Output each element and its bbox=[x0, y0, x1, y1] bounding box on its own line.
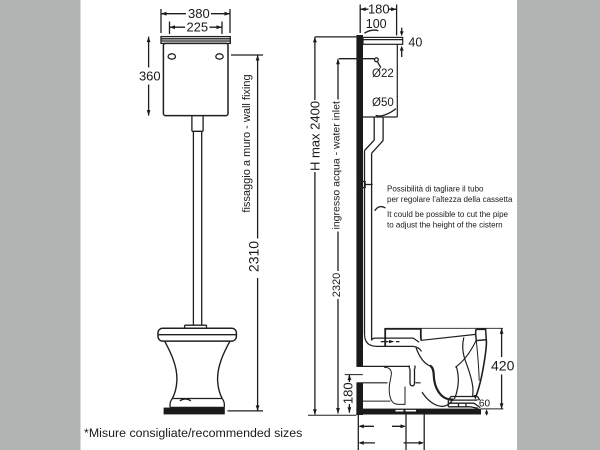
svg-text:180: 180 bbox=[340, 382, 355, 404]
svg-text:It could be possible to cut th: It could be possible to cut the pipe bbox=[387, 210, 509, 219]
svg-text:225: 225 bbox=[186, 20, 208, 35]
svg-text:180: 180 bbox=[368, 1, 390, 16]
svg-text:420: 420 bbox=[491, 358, 515, 374]
svg-text:per regolare l’altezza della c: per regolare l’altezza della cassetta bbox=[387, 195, 513, 204]
svg-text:H max 2400: H max 2400 bbox=[307, 101, 322, 171]
svg-text:100: 100 bbox=[366, 17, 387, 31]
svg-text:2310: 2310 bbox=[246, 241, 262, 272]
svg-text:ingresso acqua - water inlet: ingresso acqua - water inlet bbox=[330, 101, 342, 229]
svg-text:Ø22: Ø22 bbox=[372, 68, 394, 80]
svg-text:*Misure consigliate/recommende: *Misure consigliate/recommended sizes bbox=[84, 426, 302, 440]
svg-text:40: 40 bbox=[408, 36, 422, 50]
svg-text:360: 360 bbox=[139, 68, 161, 83]
svg-text:2320: 2320 bbox=[331, 273, 343, 297]
svg-text:to adjust the height of the ci: to adjust the height of the cistern bbox=[387, 221, 503, 230]
svg-text:fissaggio a muro - wall fixing: fissaggio a muro - wall fixing bbox=[241, 74, 253, 212]
svg-text:Possibilità di tagliare il tub: Possibilità di tagliare il tubo bbox=[387, 184, 484, 193]
svg-text:Ø50: Ø50 bbox=[372, 97, 394, 109]
svg-text:60: 60 bbox=[479, 398, 491, 409]
